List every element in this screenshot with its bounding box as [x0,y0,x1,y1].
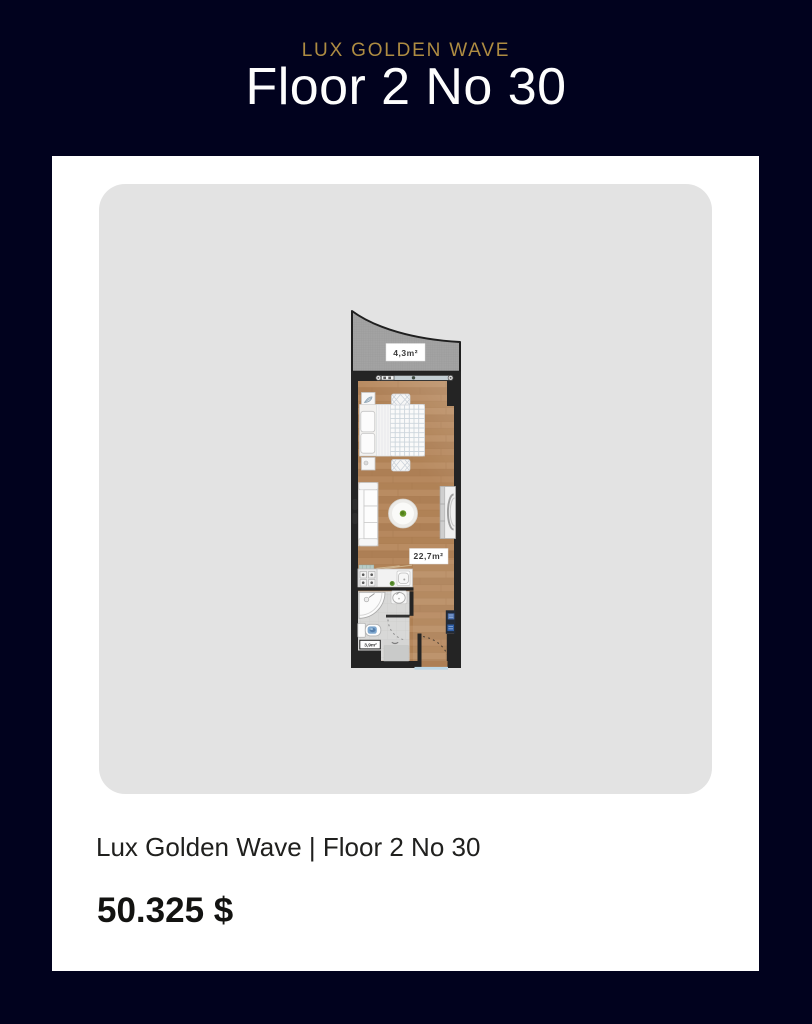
svg-text:4,3m²: 4,3m² [393,348,418,358]
svg-text:3,9m²: 3,9m² [364,642,377,648]
svg-text:22,7m²: 22,7m² [414,551,444,561]
